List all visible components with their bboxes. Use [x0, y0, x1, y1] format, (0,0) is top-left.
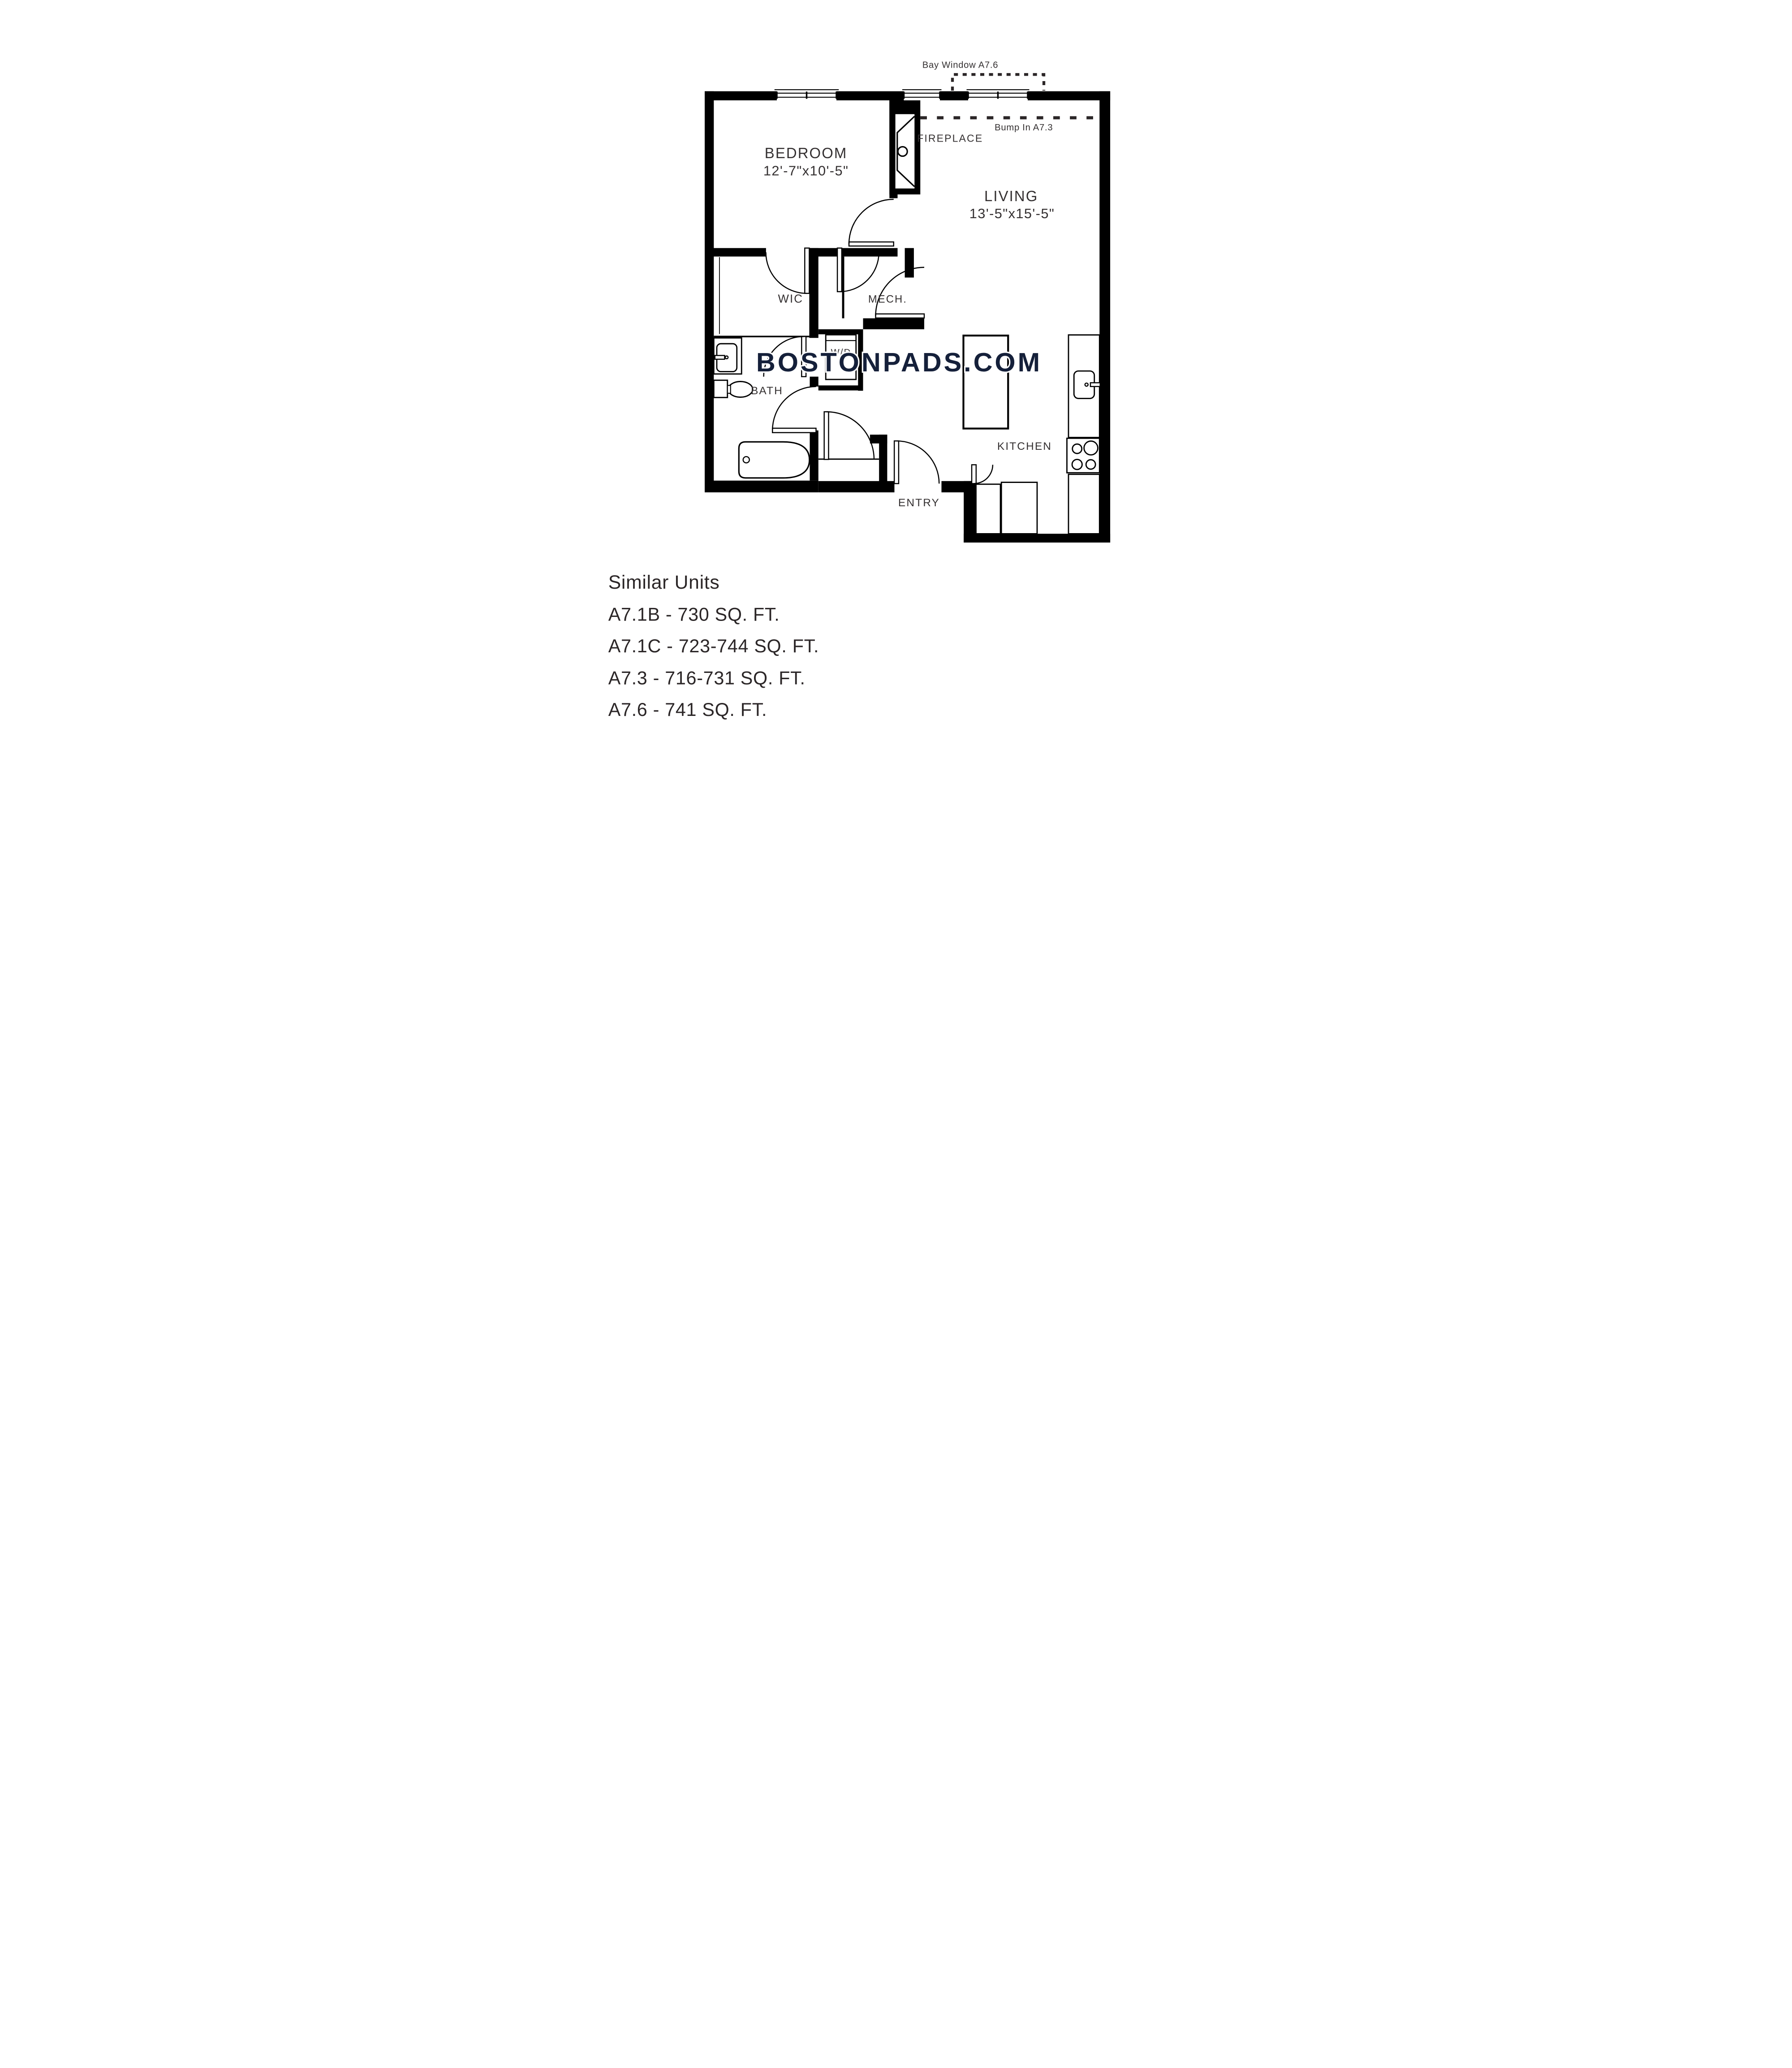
fireplace-unit: [889, 100, 920, 194]
floor-plan-diagram: Bay Window A7.6 Bump In A7.3 FIREPLACE B…: [582, 0, 1210, 724]
bathtub: [739, 442, 809, 478]
similar-unit-item: A7.3 - 716-731 SQ. FT.: [608, 668, 806, 688]
bedroom-label: BEDROOM: [765, 145, 848, 161]
similar-unit-item: A7.1B - 730 SQ. FT.: [608, 604, 780, 625]
bostonpads-watermark: BOSTONPADS.COM: [756, 347, 1042, 377]
entry-closets: [976, 483, 1037, 534]
mech-label: MECH.: [868, 293, 907, 305]
entry-label: ENTRY: [898, 497, 940, 509]
similar-unit-item: A7.1C - 723-744 SQ. FT.: [608, 636, 819, 656]
living-dimensions: 13'-5"x15'-5": [969, 206, 1055, 221]
bump-in-label: Bump In A7.3: [995, 123, 1053, 133]
similar-unit-item: A7.6 - 741 SQ. FT.: [608, 699, 767, 720]
bedroom-dimensions: 12'-7"x10'-5": [763, 163, 849, 178]
kitchen-counter-lower: [1068, 474, 1099, 534]
bath-vanity: [714, 338, 741, 374]
kitchen-label: KITCHEN: [997, 440, 1052, 452]
bay-window-label: Bay Window A7.6: [922, 60, 998, 70]
floor-plan-page: Bay Window A7.6 Bump In A7.3 FIREPLACE B…: [582, 0, 1210, 724]
living-label: LIVING: [984, 188, 1038, 204]
stove: [1067, 438, 1099, 473]
fireplace-label: FIREPLACE: [917, 133, 983, 144]
bath-label: BATH: [751, 385, 783, 397]
wic-label: WIC: [778, 293, 803, 305]
toilet: [714, 380, 753, 397]
similar-units-heading: Similar Units: [608, 572, 720, 593]
